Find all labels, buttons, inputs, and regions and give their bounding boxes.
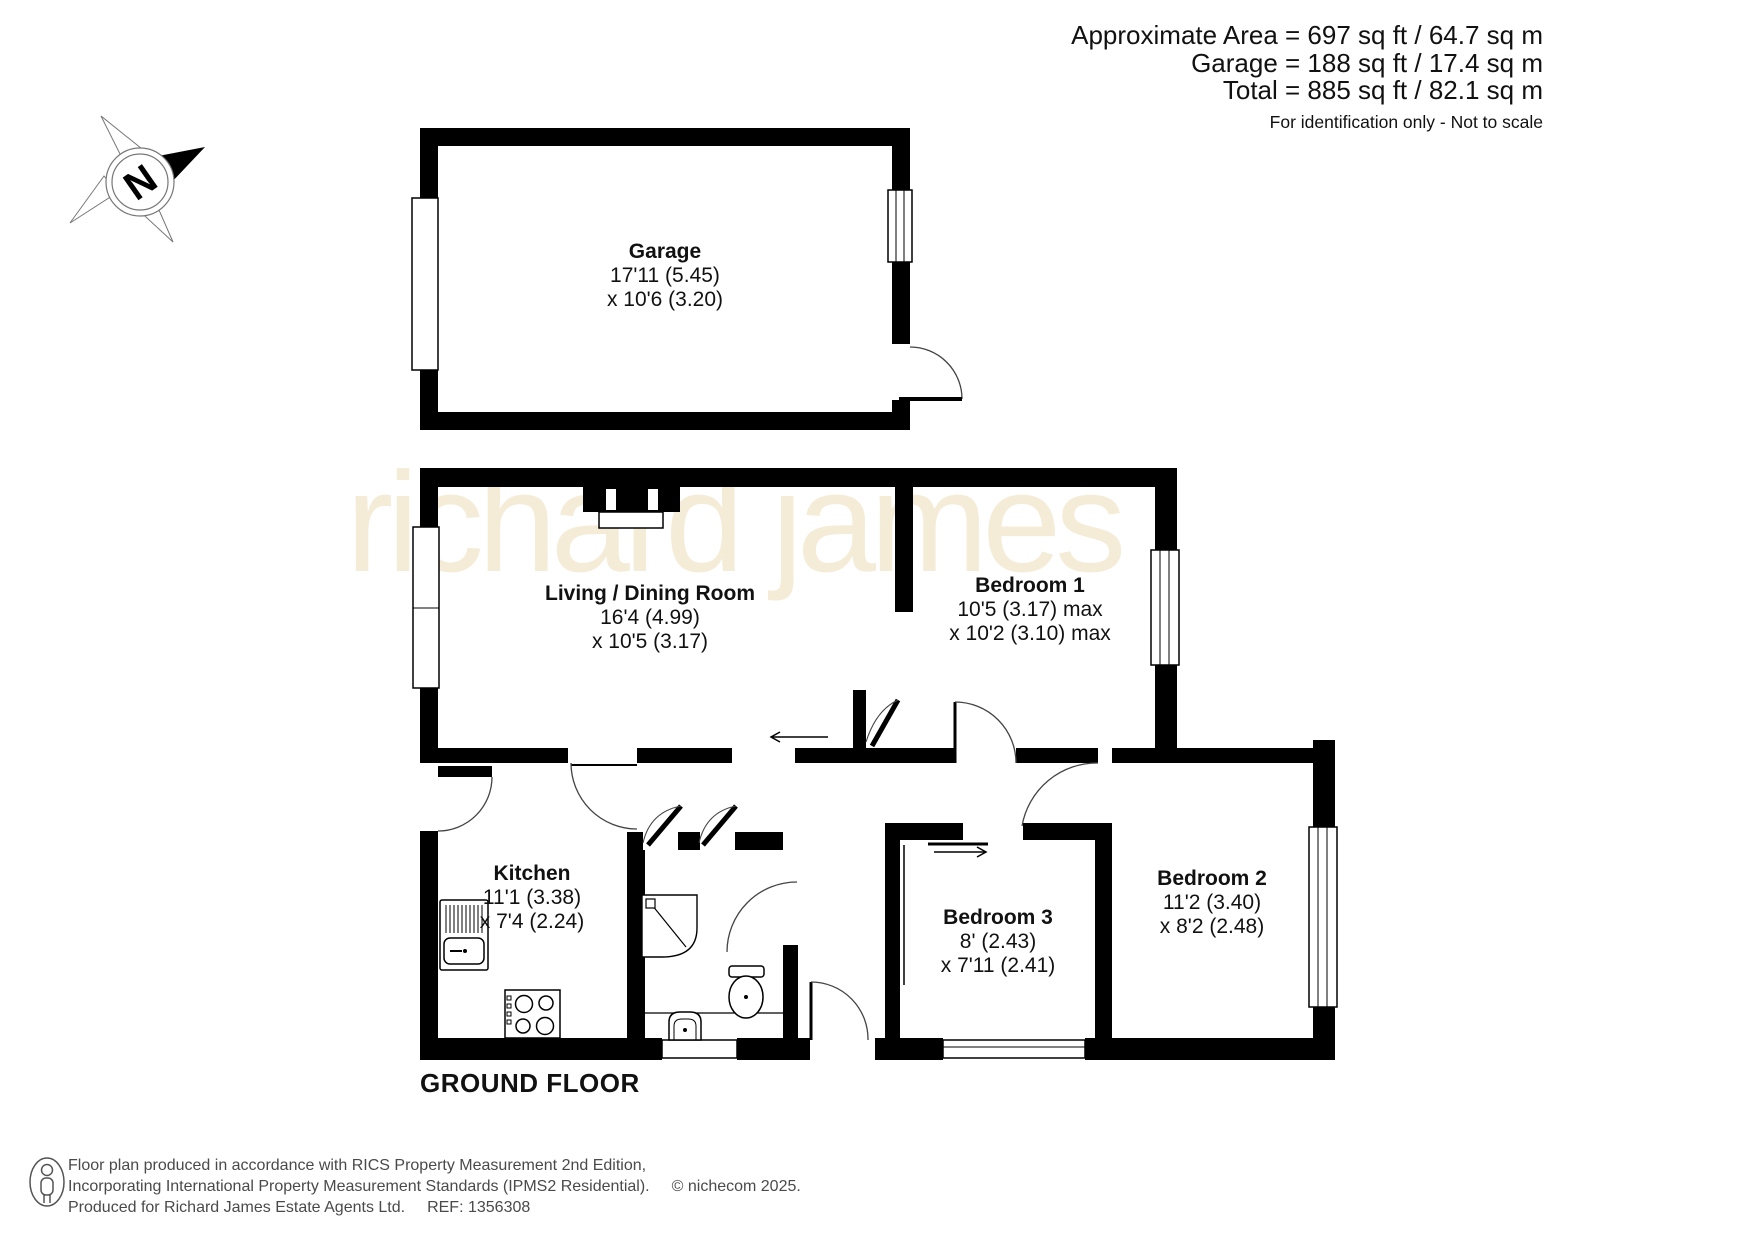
room-label-kitchen: Kitchen 11'1 (3.38) x 7'4 (2.24) [480,862,584,934]
room-label-garage: Garage 17'11 (5.45) x 10'6 (3.20) [607,240,723,312]
hob-icon [505,990,560,1038]
room-label-bedroom3: Bedroom 3 8' (2.43) x 7'11 (2.41) [941,906,1056,978]
footer-line2: Incorporating International Property Mea… [68,1176,801,1197]
garage-name: Garage [607,240,723,264]
floorplan-canvas: richard james [0,0,1755,1241]
kitchen-dim2: x 7'4 (2.24) [480,910,584,934]
shower-icon [642,895,697,957]
basin-icon [669,1012,701,1040]
total-area-line: Total = 885 sq ft / 82.1 sq m [1071,77,1543,105]
footer-line1: Floor plan produced in accordance with R… [68,1155,801,1176]
bedroom2-name: Bedroom 2 [1157,867,1267,891]
rear-door-arc [811,982,868,1040]
vestibule-door-leaf [872,700,898,746]
footer-copyright: © nichecom 2025. [672,1178,801,1195]
side-door-arc [438,777,492,831]
garage-dim1: 17'11 (5.45) [607,264,723,288]
footer-line2-text: Incorporating International Property Mea… [68,1178,650,1195]
bedroom3-dim1: 8' (2.43) [941,930,1056,954]
compass-north-icon: N [70,116,205,242]
bedroom1-dim1: 10'5 (3.17) max [949,598,1111,622]
disclaimer-line: For identification only - Not to scale [1071,112,1543,133]
footer-ref: REF: 1356308 [427,1199,530,1216]
room-label-living: Living / Dining Room 16'4 (4.99) x 10'5 … [545,582,755,654]
footer-produced-for: Produced for Richard James Estate Agents… [68,1199,405,1216]
bedroom1-door-arc [955,702,1016,763]
hall-door-arc [571,763,637,829]
room-label-bedroom2: Bedroom 2 11'2 (3.40) x 8'2 (2.48) [1157,867,1267,939]
garage-door-arc [910,347,962,399]
kitchen-name: Kitchen [480,862,584,886]
garage-dim2: x 10'6 (3.20) [607,288,723,312]
side-door-leaf [438,766,492,777]
corridor-door-arc [727,882,797,952]
bedroom2-door-arc [1022,763,1098,826]
living-dim1: 16'4 (4.99) [545,606,755,630]
bedroom1-dim2: x 10'2 (3.10) max [949,622,1111,646]
kitchen-dim1: 11'1 (3.38) [480,886,584,910]
room-label-bedroom1: Bedroom 1 10'5 (3.17) max x 10'2 (3.10) … [949,574,1111,646]
footer-line3: Produced for Richard James Estate Agents… [68,1197,801,1218]
floor-title: GROUND FLOOR [420,1068,640,1099]
living-sliding-arrow-icon [771,732,828,742]
floorplan-drawing: N [0,0,1755,1241]
bedroom2-dim2: x 8'2 (2.48) [1157,915,1267,939]
bedroom2-dim1: 11'2 (3.40) [1157,891,1267,915]
living-dim2: x 10'5 (3.17) [545,630,755,654]
living-name: Living / Dining Room [545,582,755,606]
person-badge-icon [30,1158,64,1206]
bedroom3-name: Bedroom 3 [941,906,1056,930]
footer-disclaimer: Floor plan produced in accordance with R… [68,1155,801,1218]
approximate-area-line: Approximate Area = 697 sq ft / 64.7 sq m [1071,22,1543,50]
garage-area-line: Garage = 188 sq ft / 17.4 sq m [1071,50,1543,78]
bedroom3-dim2: x 7'11 (2.41) [941,954,1056,978]
toilet-icon [729,966,764,1018]
area-summary: Approximate Area = 697 sq ft / 64.7 sq m… [1071,22,1543,133]
bedroom1-name: Bedroom 1 [949,574,1111,598]
